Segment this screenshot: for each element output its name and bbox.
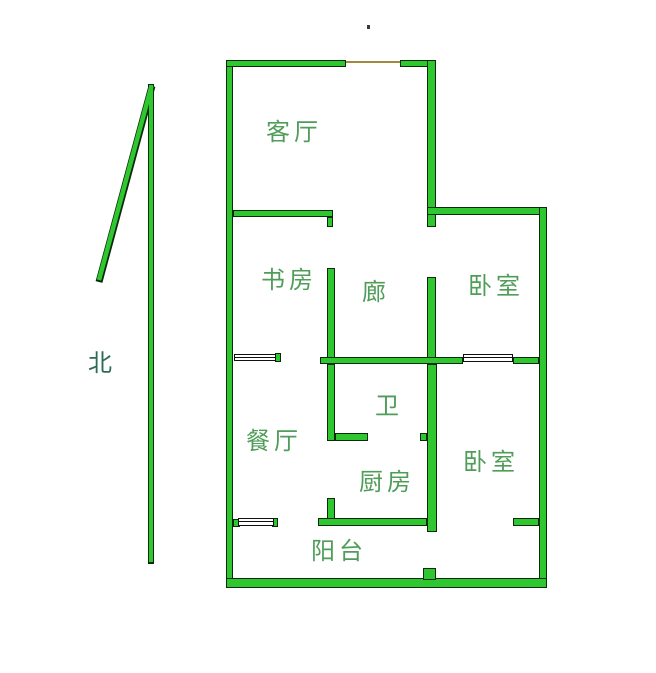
wall-segment-4 <box>427 277 436 364</box>
wall-segment-17 <box>427 364 437 532</box>
wall-segment-14 <box>327 364 335 441</box>
window-mid-line <box>464 357 512 358</box>
room-label-dining-room: 餐厅 <box>246 430 302 454</box>
north-label: 北 <box>88 352 112 376</box>
wall-segment-18 <box>327 498 335 519</box>
window-mid-line <box>239 521 273 522</box>
wall-segment-7 <box>226 578 547 588</box>
wall-segment-6 <box>539 207 547 588</box>
wall-segment-19 <box>318 518 427 526</box>
wall-segment-3 <box>427 60 436 227</box>
wall-segment-5 <box>427 207 547 215</box>
window-symbol-1 <box>463 354 513 362</box>
wall-segment-1 <box>226 60 346 67</box>
room-label-kitchen: 厨房 <box>359 471 415 495</box>
wall-segment-0 <box>226 60 233 588</box>
room-label-balcony: 阳台 <box>311 540 367 564</box>
top-wall-opening <box>346 61 402 63</box>
wall-segment-23 <box>423 568 436 580</box>
room-label-bathroom: 卫 <box>375 395 403 419</box>
wall-segment-12 <box>513 357 539 364</box>
north-arrow-icon <box>85 75 165 575</box>
wall-segment-10 <box>327 268 335 364</box>
room-label-bedroom-north: 卧室 <box>468 275 524 299</box>
window-symbol-0 <box>234 354 276 361</box>
floorplan-canvas: 北 客厅书房廊卧室卫餐厅厨房卧室阳台 <box>0 0 656 673</box>
wall-segment-16 <box>420 433 427 441</box>
window-symbol-2 <box>238 518 274 526</box>
window-mid-line <box>235 357 275 358</box>
room-label-living-room: 客厅 <box>266 121 322 145</box>
wall-segment-8 <box>233 210 333 217</box>
room-label-corridor: 廊 <box>362 281 390 305</box>
wall-segment-22 <box>513 518 539 526</box>
room-label-bedroom-south: 卧室 <box>463 451 519 475</box>
wall-segment-11 <box>320 357 463 364</box>
wall-segment-9 <box>327 217 333 227</box>
wall-segment-15 <box>335 433 368 441</box>
room-label-study: 书房 <box>261 269 317 293</box>
stray-mark <box>367 25 370 29</box>
